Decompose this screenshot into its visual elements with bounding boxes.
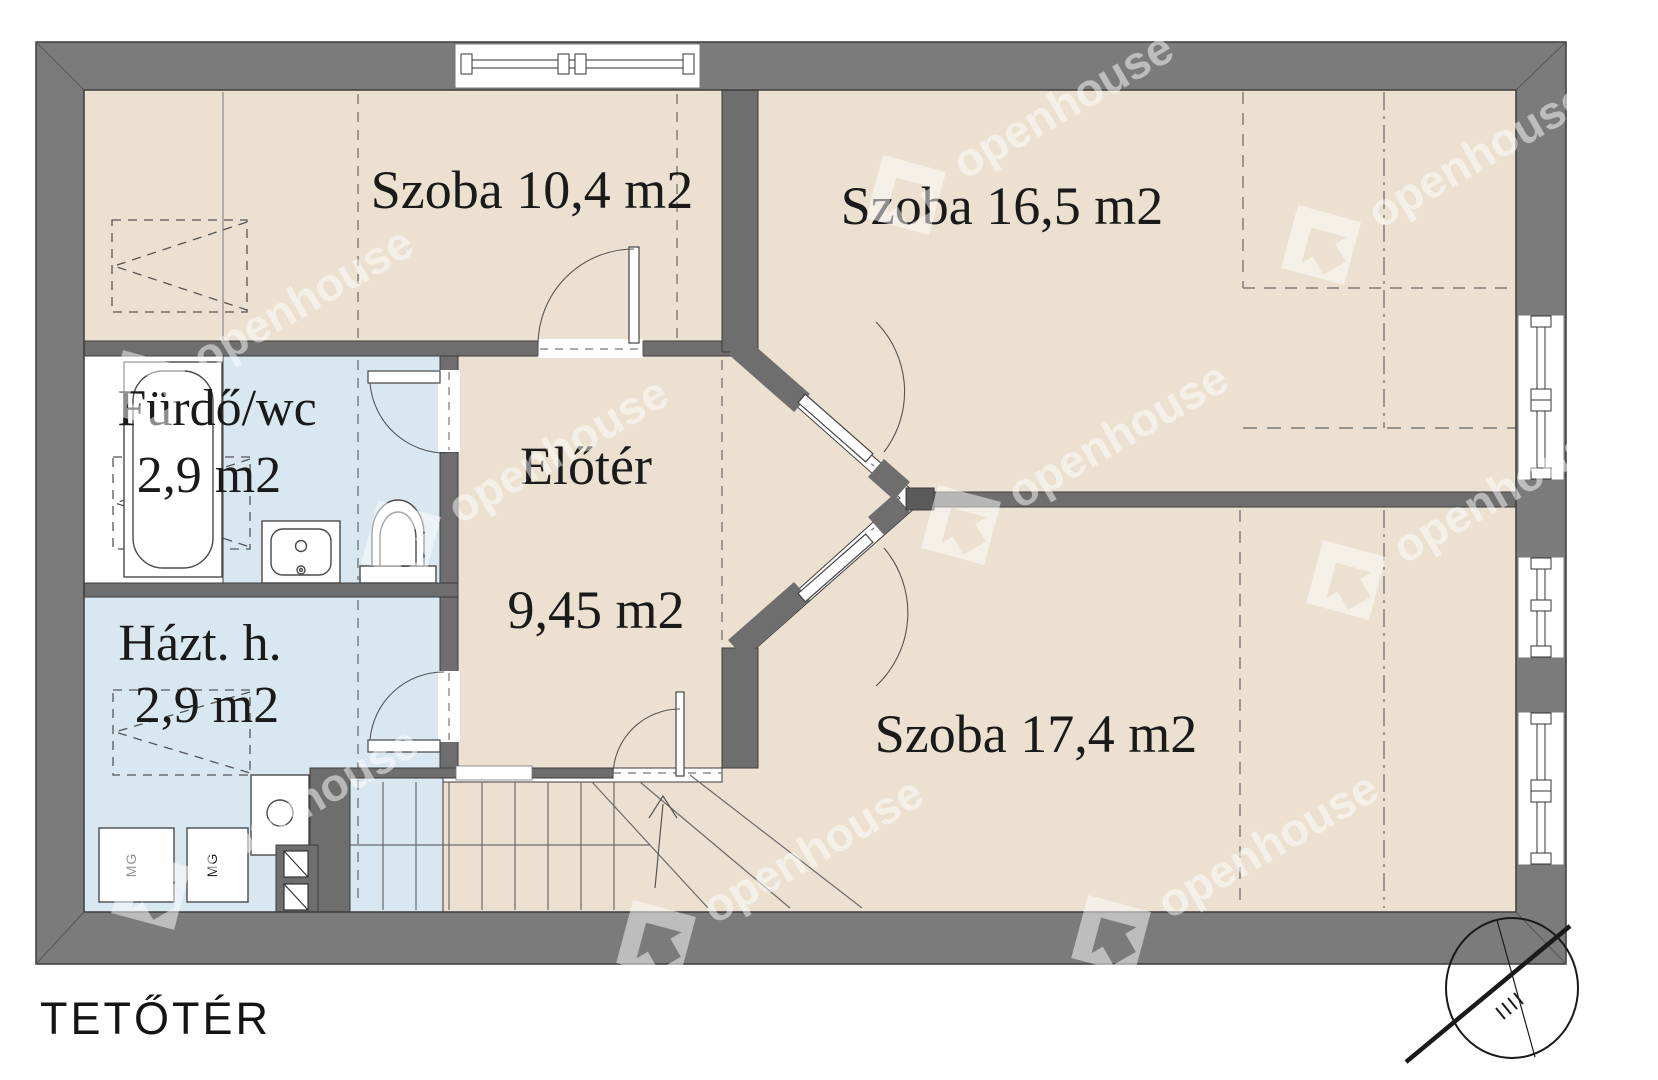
page-title: TETŐTÉR [40,993,271,1044]
label-szoba-3: Szoba 17,4 m2 [875,704,1197,764]
label-furdo-area: 2,9 m2 [137,447,281,504]
label-furdo-name: Fürdő/wc [117,380,316,437]
window-right-2 [1518,557,1564,658]
label-hazt-name: Házt. h. [118,615,281,672]
door-leaf [368,371,440,383]
window-right-1 [1518,315,1564,480]
wall-room-divider-column [722,90,758,352]
window-top [455,44,700,88]
water-heater [251,775,309,855]
window-right-3 [1518,712,1564,865]
wall-junction [906,488,934,510]
washing-machine-label: MG [123,853,139,878]
label-eloter-name: Előtér [520,436,652,496]
floor-szoba-2 [750,90,1516,492]
floor-plan-drawing: MG MG [0,0,1658,1080]
door-leaf [676,692,684,776]
dryer-label: MG [204,853,220,878]
label-szoba-2: Szoba 16,5 m2 [841,176,1163,236]
door-leaf [629,247,639,343]
floor-plan-page: MG MG [0,0,1658,1080]
door-leaf [368,740,440,752]
wall-right-rooms-divider [908,492,1516,507]
label-szoba-1: Szoba 10,4 m2 [371,160,693,220]
sink [262,521,340,583]
label-hazt-area: 2,9 m2 [135,677,279,734]
label-eloter-area: 9,45 m2 [507,580,684,640]
